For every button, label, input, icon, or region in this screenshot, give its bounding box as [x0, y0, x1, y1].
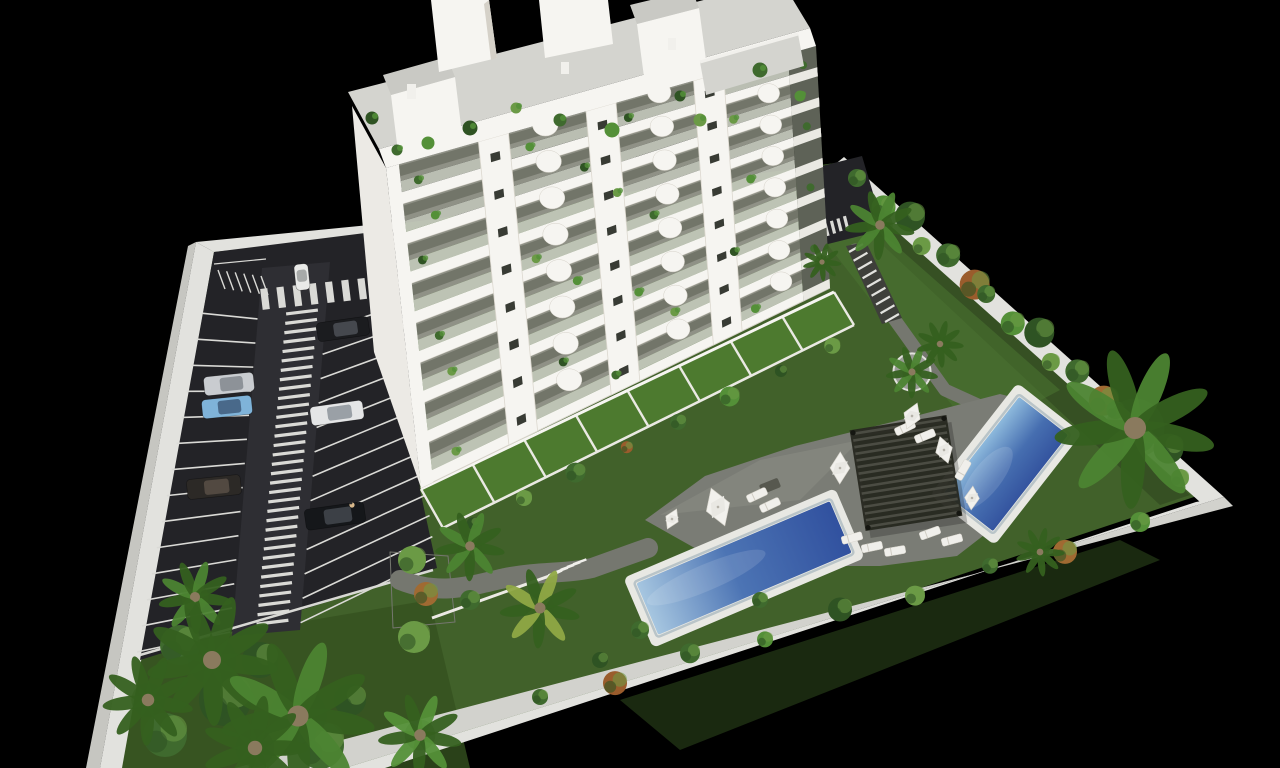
car-white-moving	[294, 263, 311, 290]
chimney-3	[668, 38, 676, 50]
pergola	[850, 415, 963, 531]
roof-terrace-plant	[516, 103, 522, 109]
curved-balcony-front	[760, 115, 782, 134]
palm-crown	[1037, 549, 1044, 556]
roof-terrace-plant	[560, 115, 566, 121]
hedge-shrub-south	[604, 681, 616, 693]
curved-balcony-front	[658, 218, 682, 239]
palm-crown	[1124, 417, 1146, 439]
curved-balcony-front	[770, 272, 792, 291]
hedge-shrub-south	[681, 651, 691, 661]
chimney-1	[407, 84, 416, 99]
render-viewport	[0, 0, 1280, 768]
curved-balcony-front	[536, 150, 561, 172]
roof-terrace-plant	[700, 115, 706, 121]
palm-crown	[414, 729, 426, 741]
terrace-edge-shrub	[621, 446, 627, 452]
balcony-plant	[423, 255, 429, 261]
hedge-shrub-south	[906, 594, 916, 604]
balcony-plant	[654, 210, 660, 216]
roof-terrace-plant	[470, 123, 476, 129]
hedge-shrub-ne	[914, 244, 923, 253]
roof-terrace-plant	[372, 113, 378, 119]
balcony-plant	[456, 446, 462, 452]
scene-canvas	[0, 0, 1280, 768]
roof-terrace-plant	[605, 123, 620, 138]
curved-balcony-front	[766, 209, 788, 228]
balcony-plant	[639, 287, 645, 293]
lawn-shrub	[632, 628, 641, 637]
roof-terrace-plant	[760, 65, 766, 71]
balcony-plant	[616, 370, 622, 376]
balcony-plant	[563, 357, 569, 363]
car-cabin	[219, 376, 243, 392]
curved-balcony-front	[543, 223, 568, 245]
hedge-shrub-ne	[1043, 360, 1052, 369]
roof-terrace-plant	[463, 121, 478, 136]
balcony-plant	[756, 304, 762, 310]
hedge-shrub-ne	[1026, 330, 1041, 345]
hedge-shrub-ne	[1067, 369, 1079, 381]
curved-balcony-front	[653, 150, 677, 171]
car-cabin	[296, 269, 307, 282]
balcony-plant	[530, 142, 536, 148]
curved-balcony-front	[768, 241, 790, 260]
curved-balcony-front	[539, 187, 564, 209]
balcony-plant	[418, 175, 424, 181]
curved-balcony-front	[546, 260, 571, 282]
curved-balcony-front	[650, 116, 674, 137]
balcony-plant	[617, 188, 623, 194]
lawn-shrub	[753, 598, 761, 606]
car-cabin	[217, 399, 241, 415]
lawn-shrub	[461, 598, 471, 608]
curved-balcony-front	[758, 84, 780, 103]
terrace-edge-shrub	[776, 370, 782, 376]
terrace-edge-shrub	[566, 471, 576, 481]
balcony-plant	[629, 113, 635, 119]
hedge-shrub-ne	[961, 282, 976, 297]
roof-terrace-plant	[428, 138, 434, 144]
curved-balcony-front	[762, 146, 784, 165]
roof-terrace-plant	[612, 125, 618, 131]
palm-crown	[875, 220, 885, 230]
balcony-plant	[435, 210, 441, 216]
curved-balcony-front	[666, 319, 690, 340]
pedestrian-head	[350, 502, 353, 505]
balcony-plant	[751, 174, 757, 180]
hedge-shrub-ne	[849, 176, 858, 185]
palm-crown	[142, 694, 154, 706]
lawn-shrub	[399, 557, 413, 571]
curved-balcony-front	[550, 296, 575, 318]
hedge-shrub-south	[758, 638, 766, 646]
balcony-plant	[452, 366, 458, 372]
curved-balcony-front	[661, 251, 685, 272]
lawn-shrub	[593, 658, 601, 666]
palm-crown	[534, 602, 545, 613]
terrace-edge-shrub	[517, 496, 525, 504]
corner-balcony-plant	[806, 183, 814, 191]
curved-balcony-front	[764, 178, 786, 197]
balcony-plant	[675, 307, 681, 313]
lawn-shrub	[400, 634, 416, 650]
balcony-plant	[536, 254, 542, 260]
palm-crown	[819, 259, 824, 264]
hedge-shrub-south	[829, 607, 841, 619]
palm-crown	[465, 541, 475, 551]
roof-terrace-plant	[680, 91, 686, 97]
roof-terrace-plant	[397, 145, 403, 151]
hedge-shrub-ne	[978, 292, 987, 301]
palm-crown	[248, 741, 262, 755]
hedge-shrub-south	[983, 564, 991, 572]
corner-balcony-plant	[803, 122, 811, 130]
terrace-edge-shrub	[721, 394, 731, 404]
balcony-plant	[577, 276, 583, 282]
terrace-edge-shrub	[825, 344, 833, 352]
curved-balcony-front	[556, 369, 581, 391]
balcony-plant	[734, 115, 740, 121]
hedge-shrub-ne	[937, 253, 949, 265]
roof-terrace-plant	[800, 91, 806, 97]
terrace-edge-shrub	[671, 420, 679, 428]
curved-balcony-front	[664, 285, 688, 306]
palm-crown	[937, 341, 943, 347]
hedge-shrub-south	[533, 695, 541, 703]
car-cabin	[204, 478, 230, 495]
curved-balcony-front	[656, 184, 680, 205]
curved-balcony-front	[553, 332, 578, 354]
palm-crown	[203, 651, 221, 669]
chimney-2	[561, 62, 569, 74]
balcony-plant	[585, 162, 591, 168]
lawn-shrub	[415, 592, 427, 604]
palm-crown	[908, 368, 915, 375]
roof-terrace-plant	[753, 63, 768, 78]
balcony-plant	[734, 247, 740, 253]
hedge-shrub-ne	[1002, 321, 1014, 333]
hedge-shrub-south	[1131, 520, 1141, 530]
balcony-plant	[439, 331, 445, 337]
